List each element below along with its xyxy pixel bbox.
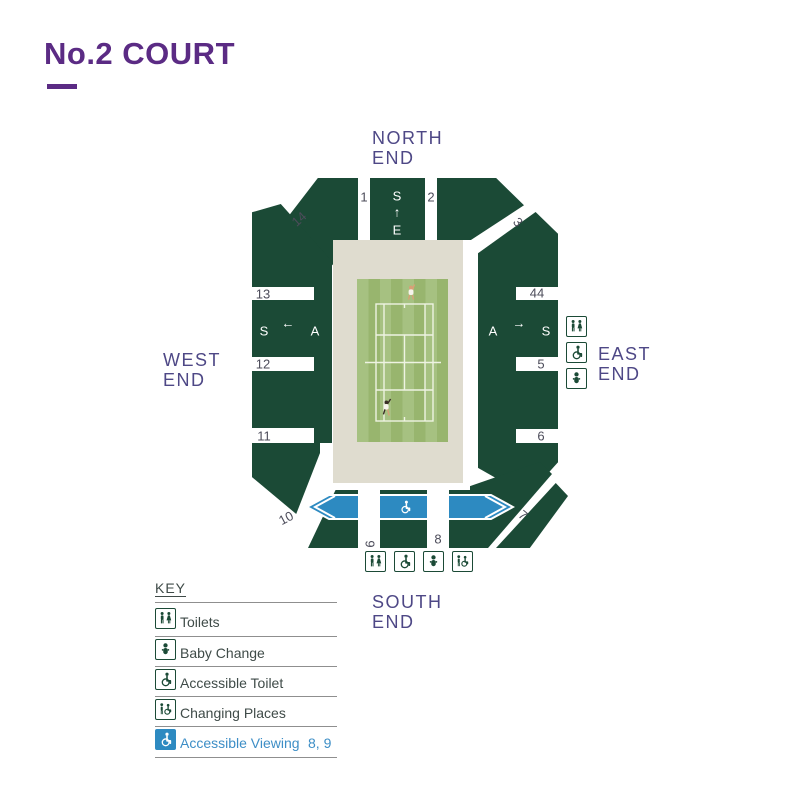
west-stand-letter-s: S	[260, 324, 269, 339]
court-lines	[357, 279, 448, 442]
key-label-changing-places: Changing Places	[180, 705, 286, 721]
aisle-label-12: 12	[256, 357, 270, 372]
west-end-label: WEST END	[163, 350, 221, 390]
east-stand-arrow-right-icon: →	[513, 316, 526, 331]
north-stand-letter-s: S	[393, 189, 402, 204]
toilets-icon	[365, 551, 386, 572]
court-map-page: No.2 COURT NORTH END WEST END EAST END S…	[0, 0, 800, 800]
tennis-player-south	[380, 398, 394, 418]
aisle-label-11: 11	[257, 429, 271, 444]
baby-change-icon	[423, 551, 444, 572]
key-divider	[155, 666, 337, 667]
east-end-label: EAST END	[598, 344, 651, 384]
key-label-accessible-viewing[interactable]: Accessible Viewing	[180, 735, 300, 751]
baby-change-icon	[155, 639, 176, 660]
north-end-label: NORTH END	[372, 128, 443, 168]
accessible-viewing-sections[interactable]: 8, 9	[308, 735, 331, 751]
aisle-label-1: 1	[360, 190, 367, 205]
aisle-label-9: 9	[363, 540, 378, 547]
wheelchair-icon	[398, 500, 412, 514]
toilets-icon	[566, 316, 587, 337]
aisle-gap-9	[358, 486, 380, 548]
accessible-toilet-icon	[566, 342, 587, 363]
east-stand-letter-s: S	[542, 324, 551, 339]
key-divider	[155, 696, 337, 697]
accessible-viewing-icon	[155, 729, 176, 750]
title-underline-dash	[47, 84, 77, 89]
changing-places-icon	[155, 699, 176, 720]
page-title: No.2 COURT	[44, 36, 235, 72]
aisle-label-8: 8	[434, 532, 441, 547]
north-stand-letter-e: E	[393, 223, 402, 238]
key-label-toilets: Toilets	[180, 614, 220, 630]
accessible-toilet-icon	[394, 551, 415, 572]
changing-places-icon	[452, 551, 473, 572]
north-stand-arrow-up-icon: ↑	[394, 205, 401, 220]
aisle-label-6: 6	[537, 429, 544, 444]
key-divider	[155, 726, 337, 727]
aisle-label-5: 5	[537, 357, 544, 372]
toilets-icon	[155, 608, 176, 629]
west-stand-arrow-left-icon: ←	[282, 316, 295, 331]
key-heading: KEY	[155, 580, 186, 596]
key-divider	[155, 602, 337, 603]
baby-change-icon	[566, 368, 587, 389]
west-stand-letter-a: A	[311, 324, 320, 339]
tennis-player-north	[404, 283, 418, 301]
accessible-toilet-icon	[155, 669, 176, 690]
aisle-label-4: 44	[530, 286, 544, 301]
key-divider	[155, 636, 337, 637]
key-label-baby-change: Baby Change	[180, 645, 265, 661]
key-divider	[155, 757, 337, 758]
aisle-label-13: 13	[256, 287, 270, 302]
east-stand-letter-a: A	[489, 324, 498, 339]
aisle-label-2: 2	[427, 190, 434, 205]
south-end-label: SOUTH END	[372, 592, 443, 632]
key-label-accessible-toilet: Accessible Toilet	[180, 675, 283, 691]
